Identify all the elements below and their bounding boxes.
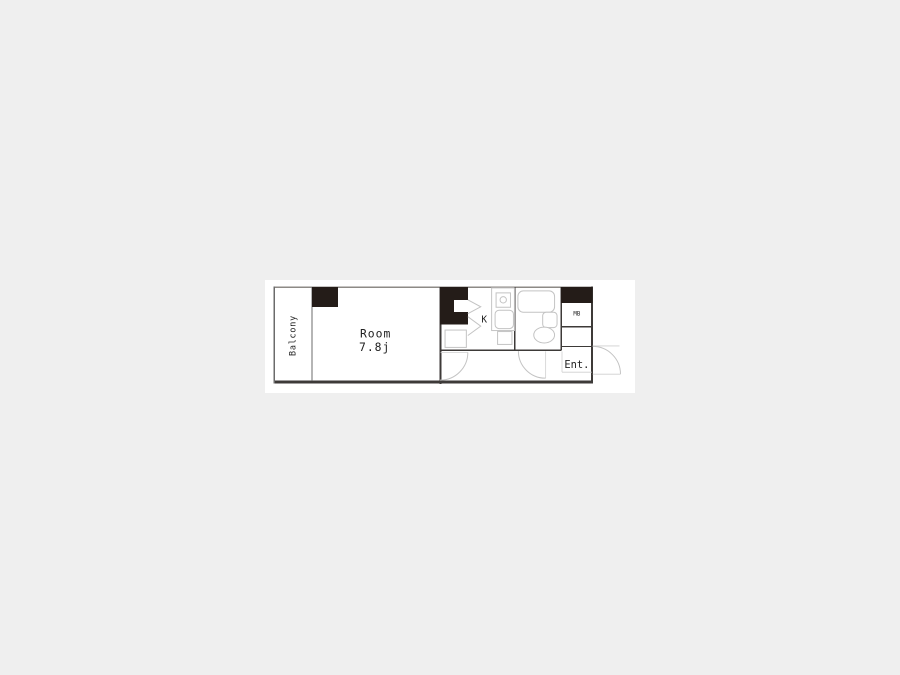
pillar-room-left — [312, 287, 338, 307]
left-wall — [274, 286, 275, 383]
bathroom-fixtures — [518, 291, 557, 343]
washer-space — [445, 330, 466, 347]
bottom-wall — [274, 381, 593, 384]
room-name-label: Room — [360, 327, 391, 341]
meter-box-label: MB — [573, 312, 580, 318]
balcony-label: Balcony — [287, 315, 297, 356]
stove — [496, 293, 510, 307]
pillar-top-right — [561, 287, 593, 303]
toilet-tank — [543, 312, 557, 327]
kitchen-sink — [495, 310, 513, 328]
bathroom-door-arc — [518, 351, 545, 378]
counter-end-unit — [498, 332, 512, 345]
floorplan-drawing: Balcony Room 7.8j K MB Ent. — [265, 280, 635, 393]
hallway-top-wall — [440, 349, 561, 351]
page-background: Balcony Room 7.8j K MB Ent. — [0, 0, 900, 675]
toilet-bowl — [534, 327, 555, 343]
floorplan-canvas: Balcony Room 7.8j K MB Ent. — [265, 280, 635, 393]
entrance-door-arc — [593, 346, 621, 374]
shaft-bottom-line — [561, 346, 593, 347]
entrance-label: Ent. — [564, 359, 589, 371]
meter-box-bottom-line — [561, 326, 593, 327]
room-door-arc — [440, 352, 468, 380]
folding-door-lower — [468, 317, 481, 336]
room-size-label: 7.8j — [359, 340, 390, 354]
kitchen-label: K — [481, 315, 487, 326]
bathtub — [518, 291, 555, 312]
pillar-notch — [454, 300, 468, 312]
folding-door-upper — [468, 300, 481, 314]
